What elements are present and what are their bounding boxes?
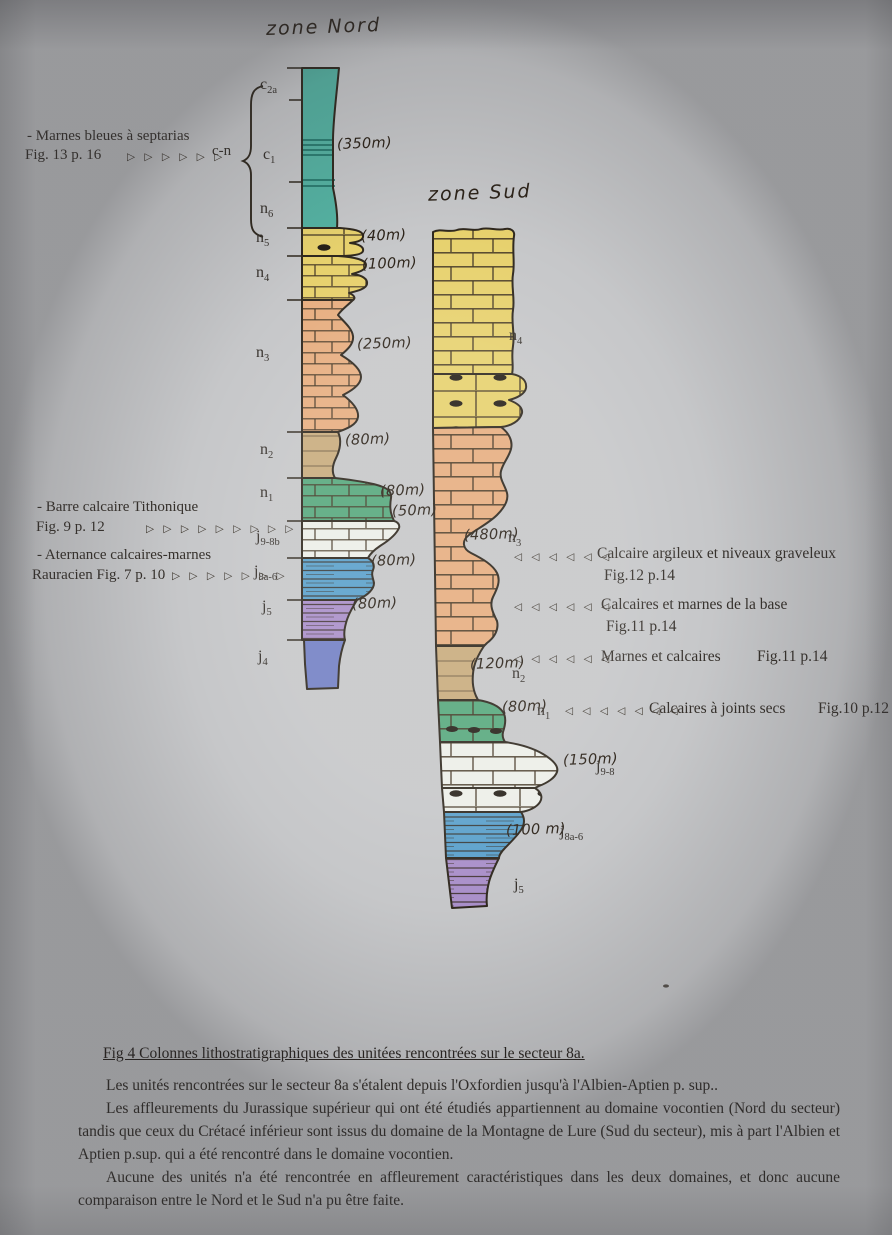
- nord-segment-n3: [302, 300, 361, 432]
- annotation-calcaire-argileux: Calcaire argileux et niveaux graveleux: [597, 545, 836, 563]
- sud-unit-label-n4: n4: [509, 327, 522, 347]
- annotation-marnes-et-calcaires-fig: Fig.11 p.14: [757, 648, 827, 666]
- nord-unit-label-n2: n2: [260, 441, 273, 461]
- ink-speck: [663, 984, 669, 987]
- nord-unit-label-j4: j4: [258, 648, 268, 668]
- annotation-calcaires-joints-secs: Calcaires à joints secs: [649, 700, 785, 718]
- nord-unit-label-n1: n1: [260, 484, 273, 504]
- nord-thickness-j8a-6: (80m): [371, 552, 417, 570]
- left-arrows-icon: ◁ ◁ ◁ ◁ ◁ ◁: [514, 653, 612, 665]
- sud-unit-label-j8a-6: j8a-6: [560, 823, 583, 843]
- nord-unit-label-c1: c1: [263, 146, 275, 166]
- nord-segment-j8a-6: [302, 558, 374, 600]
- figure-caption: Fig 4 Colonnes lithostratigraphiques des…: [103, 1045, 585, 1063]
- right-arrows-icon: ▷ ▷ ▷ ▷ ▷ ▷: [127, 151, 225, 163]
- nord-thickness-c-n: (350m): [337, 135, 392, 153]
- annotation-barre-calcaire: - Barre calcaire Tithonique: [37, 499, 198, 516]
- annotation-barre-calcaire-fig: Fig. 9 p. 12: [36, 519, 105, 536]
- sud-unit-label-j9-8: j9-8: [596, 758, 614, 778]
- nord-thickness-n3: (250m): [357, 335, 412, 353]
- nord-unit-label-n4: n4: [256, 264, 269, 284]
- scanned-document-page: zone Nord zone Sud c2a c1 n6 n5 n4 n3 n2…: [0, 0, 892, 1235]
- sud-thickness-j8a-6: (100 m): [506, 821, 566, 839]
- body-text: Les unités rencontrées sur le secteur 8a…: [78, 1074, 840, 1212]
- sud-zone-title: zone Sud: [428, 180, 532, 206]
- sud-segment-n2: [436, 646, 484, 700]
- right-arrows-icon: ▷ ▷ ▷ ▷ ▷ ▷ ▷ ▷ ▷: [146, 523, 296, 535]
- sud-unit-label-n1: n1: [537, 702, 550, 722]
- nord-thickness-j9-8b: (50m): [392, 502, 438, 520]
- nord-thickness-n1: (80m): [380, 482, 426, 500]
- nord-segment-c-n-teal: [302, 68, 339, 228]
- nord-segment-n5: [302, 228, 363, 256]
- annotation-calcaires-marnes-base-fig: Fig.11 p.14: [606, 618, 676, 636]
- nord-segment-j4: [304, 640, 345, 689]
- left-arrows-icon: ◁ ◁ ◁ ◁ ◁ ◁: [514, 601, 612, 613]
- sud-segment-n4-dotted: [433, 374, 526, 428]
- nord-unit-label-n6: n6: [260, 200, 273, 220]
- annotation-calcaires-joints-secs-fig: Fig.10 p.12: [818, 700, 889, 718]
- nord-segment-n4: [302, 256, 367, 300]
- nord-thickness-n5: (40m): [361, 227, 407, 245]
- nord-segment-j5: [302, 600, 357, 640]
- nord-segment-n2: [302, 432, 340, 478]
- sud-segment-n4-bricks: [433, 228, 514, 374]
- nord-unit-label-j5: j5: [262, 598, 272, 618]
- annotation-aternance: - Aternance calcaires-marnes: [37, 547, 211, 564]
- paragraph: Les unités rencontrées sur le secteur 8a…: [78, 1074, 840, 1097]
- nord-zone-title: zone Nord: [266, 14, 382, 40]
- sud-segment-j9-8: [440, 742, 557, 788]
- sud-unit-label-j5: j5: [514, 876, 524, 896]
- nord-boundary-ticks: [287, 68, 302, 640]
- sud-segment-j5: [446, 858, 499, 908]
- annotation-aternance-fig: Rauracien Fig. 7 p. 10: [32, 567, 165, 584]
- sud-unit-label-n2: n2: [512, 665, 525, 685]
- paragraph: Les affleurements du Jurassique supérieu…: [78, 1097, 840, 1166]
- nord-unit-label-n3: n3: [256, 344, 269, 364]
- annotation-marnes-bleues: - Marnes bleues à septarias: [27, 128, 189, 145]
- nord-unit-label-n5: n5: [256, 229, 269, 249]
- nord-thickness-j5: (80m): [352, 595, 398, 613]
- annotation-marnes-bleues-fig: Fig. 13 p. 16: [25, 147, 101, 164]
- nord-thickness-n4: (100m): [362, 255, 417, 273]
- nord-thickness-n2: (80m): [345, 431, 391, 449]
- c-n-group-label: c-n: [212, 143, 231, 160]
- paragraph: Aucune des unités n'a été rencontrée en …: [78, 1166, 840, 1212]
- sud-unit-label-n3: n3: [508, 529, 521, 549]
- annotation-calcaires-marnes-base: Calcaires et marnes de la base: [601, 596, 787, 614]
- sud-segment-j9-8-dotted: [442, 788, 541, 812]
- sud-segment-n1: [438, 700, 505, 742]
- right-arrows-icon: ▷ ▷ ▷ ▷ ▷ ▷ ▷: [172, 570, 288, 582]
- nord-unit-label-c2a: c2a: [260, 76, 277, 96]
- annotation-calcaire-argileux-fig: Fig.12 p.14: [604, 567, 675, 585]
- annotation-marnes-et-calcaires: Marnes et calcaires: [601, 648, 721, 666]
